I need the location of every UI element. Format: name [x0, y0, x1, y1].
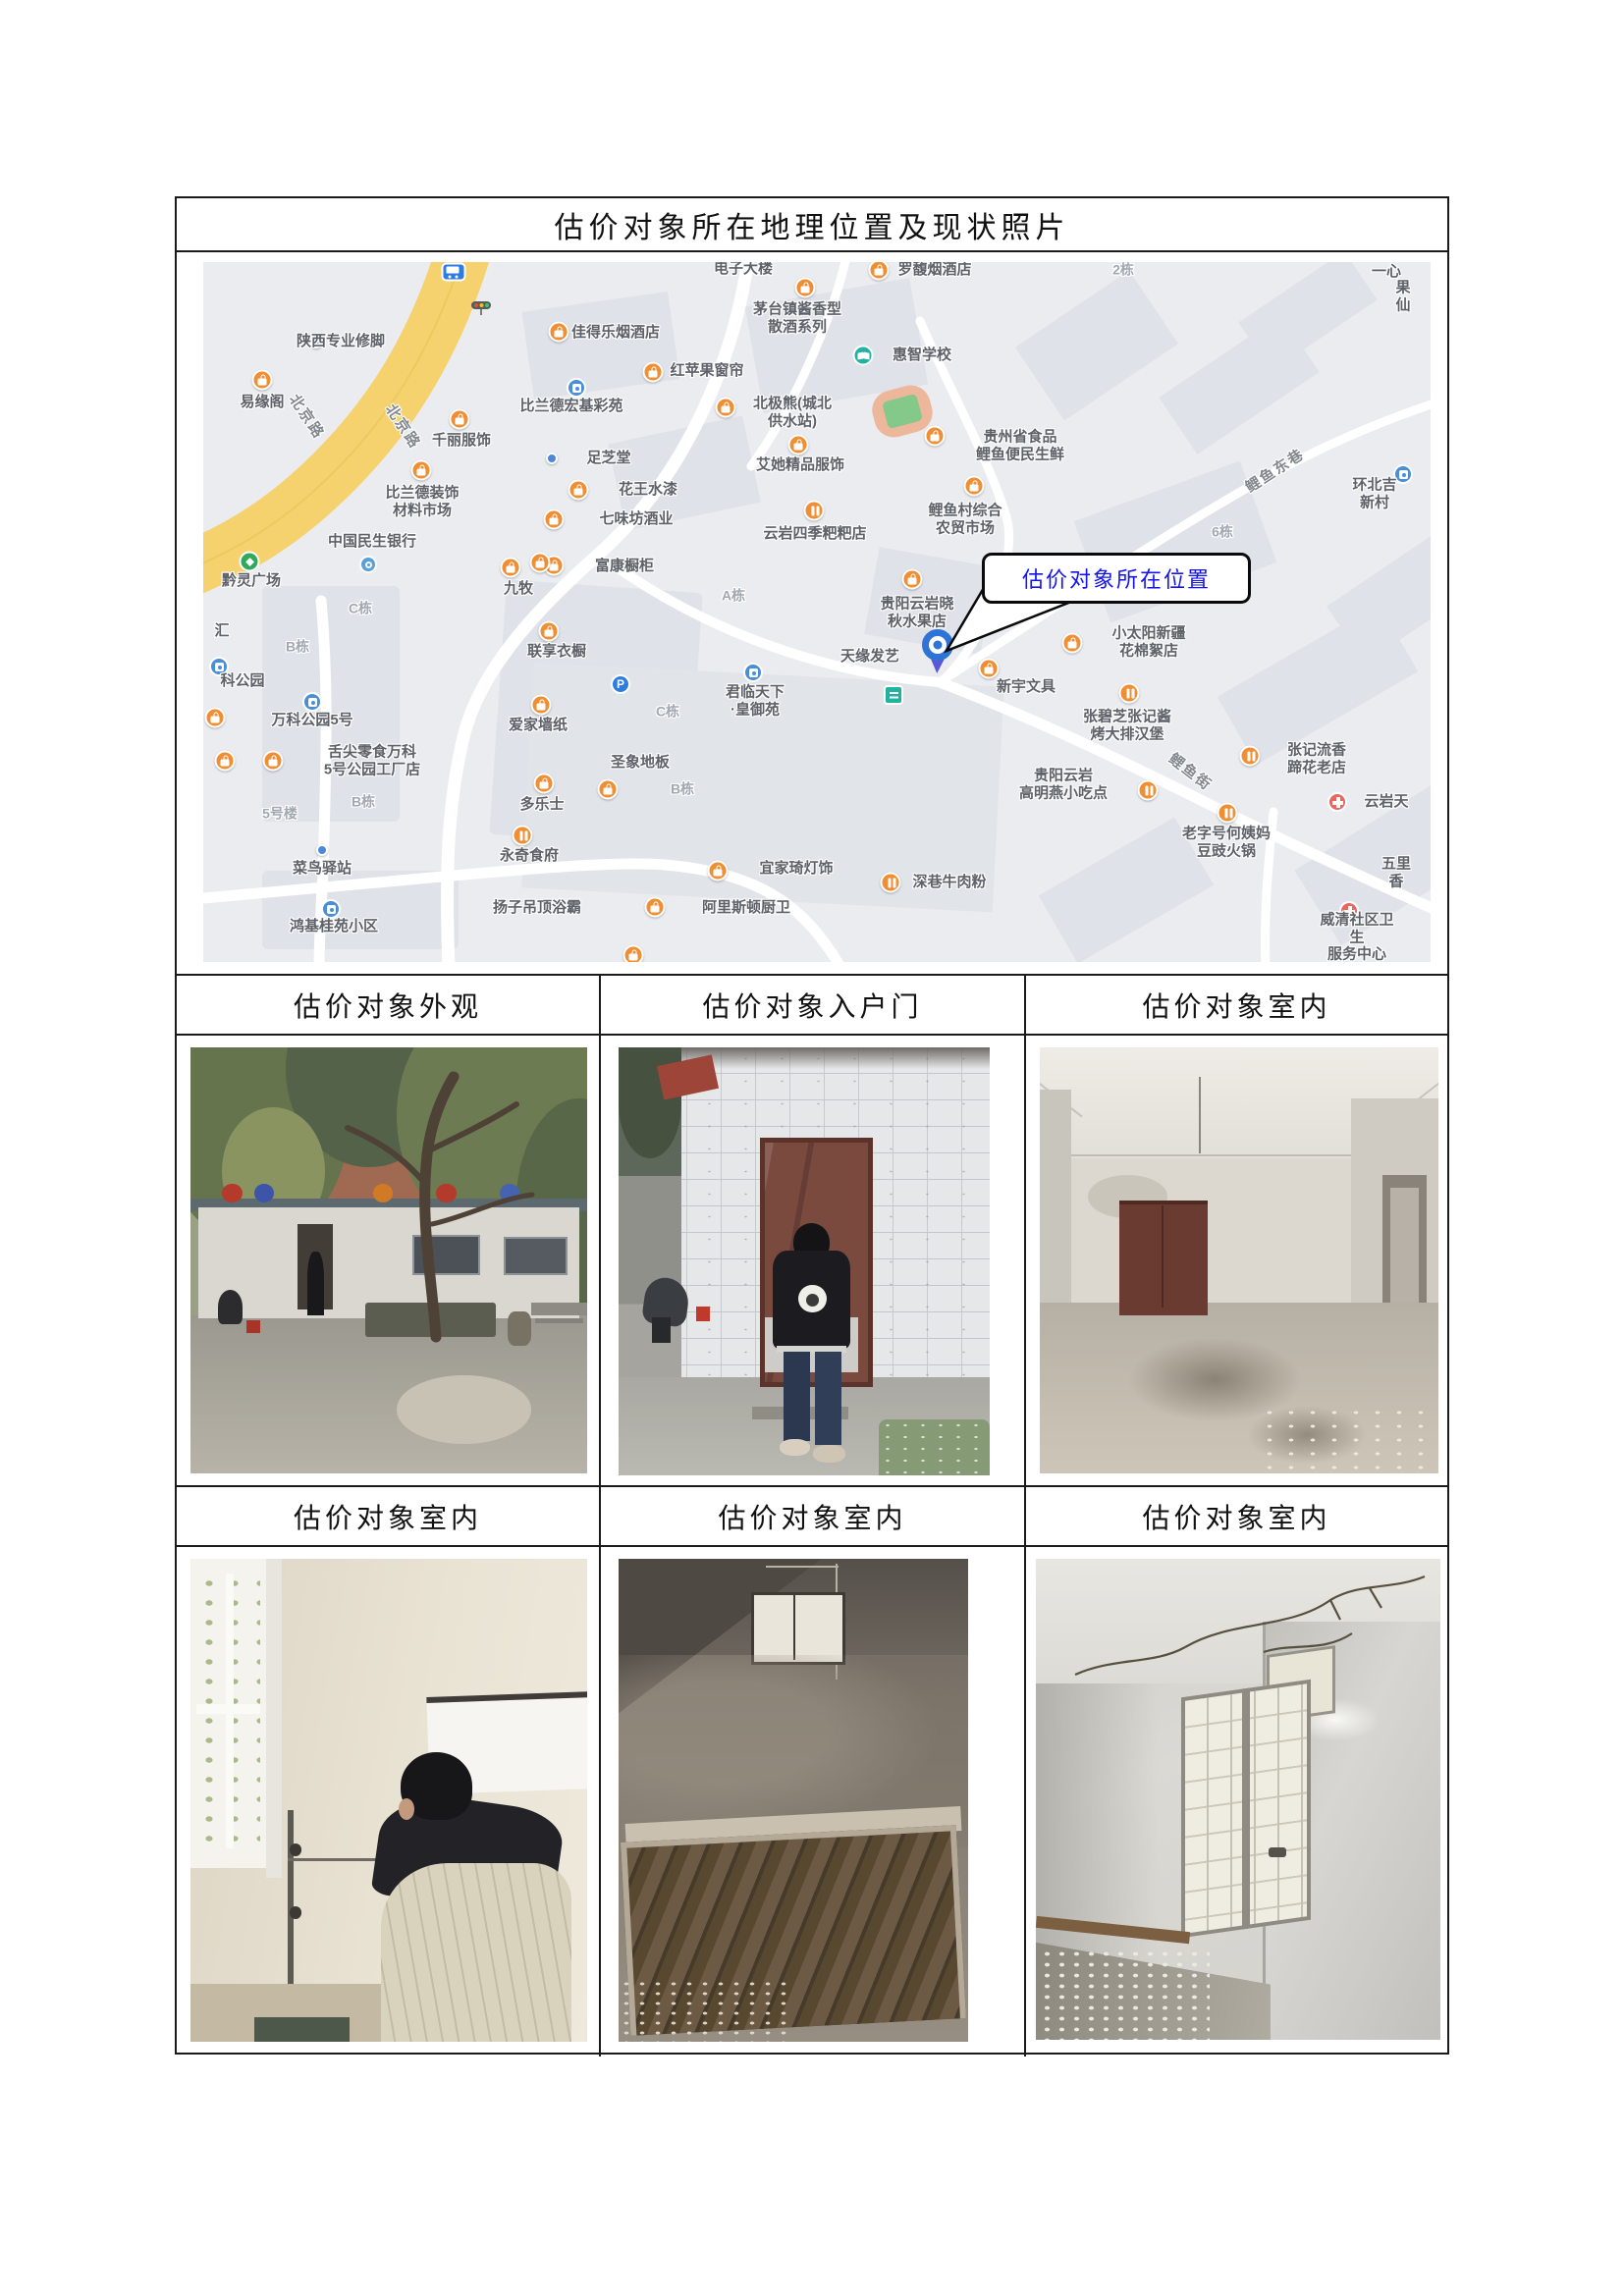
red-cabinet [1119, 1201, 1207, 1315]
floor-mat [254, 2017, 350, 2042]
photo-interior-3 [619, 1559, 968, 2042]
header-interior: 估价对象室内 [1142, 1497, 1330, 1536]
pipe [766, 1566, 839, 1568]
page-title: 估价对象所在地理位置及现状照片 [555, 203, 1070, 246]
photo-row-2 [177, 1547, 1447, 2056]
header-exterior: 估价对象外观 [294, 986, 482, 1025]
pipe-valve [290, 1843, 301, 1855]
photo-table: 估价对象所在地理位置及现状照片 [175, 196, 1449, 2055]
photo-interior-1 [1040, 1047, 1438, 1473]
header-entry-door: 估价对象入户门 [702, 986, 922, 1025]
window-frame [793, 1595, 795, 1660]
red-bucket [696, 1307, 709, 1321]
hanging-wire [1199, 1077, 1201, 1153]
header-interior: 估价对象室内 [718, 1497, 906, 1536]
map-row: 电子大楼罗馥烟酒店一心果仙陕西专业修脚茅台镇酱香型 散酒系列佳得乐烟酒店惠智学校… [177, 252, 1447, 976]
person-face [399, 1798, 414, 1820]
person-shoe [813, 1445, 844, 1462]
subject-location-callout: 估价对象所在位置 [982, 553, 1251, 604]
person-shoe [780, 1439, 809, 1456]
ceiling-cracks [1036, 1559, 1440, 2040]
window-frame [266, 1559, 282, 1878]
window [751, 1592, 845, 1665]
texture [1259, 1406, 1438, 1473]
window-frame [196, 1704, 260, 1715]
person-jacket [381, 1863, 571, 2042]
header-interior: 估价对象室内 [294, 1497, 482, 1536]
callout-pointer [203, 262, 1431, 962]
header-row-2: 估价对象室内 估价对象室内 估价对象室内 [177, 1487, 1447, 1547]
photo-row-1 [177, 1036, 1447, 1487]
jacket-logo [806, 1294, 819, 1307]
person-jeans [815, 1352, 840, 1446]
document-page: 估价对象所在地理位置及现状照片 [0, 0, 1624, 2296]
crouching-person [652, 1317, 671, 1343]
photo-exterior [190, 1047, 587, 1473]
red-cabinet [1162, 1205, 1164, 1308]
tree [190, 1047, 587, 1473]
location-map: 电子大楼罗馥烟酒店一心果仙陕西专业修脚茅台镇酱香型 散酒系列佳得乐烟酒店惠智学校… [203, 262, 1431, 962]
person-jeans [784, 1352, 809, 1442]
photo-interior-4 [1036, 1559, 1440, 2040]
header-interior: 估价对象室内 [1142, 986, 1330, 1025]
debris [619, 1979, 786, 2042]
header-row-1: 估价对象外观 估价对象入户门 估价对象室内 [177, 976, 1447, 1036]
pipe-valve [290, 1906, 301, 1918]
photo-entry-door [619, 1047, 990, 1475]
photo-interior-2 [190, 1559, 587, 2042]
mossy-block [879, 1419, 990, 1475]
table-title-row: 估价对象所在地理位置及现状照片 [177, 198, 1447, 252]
